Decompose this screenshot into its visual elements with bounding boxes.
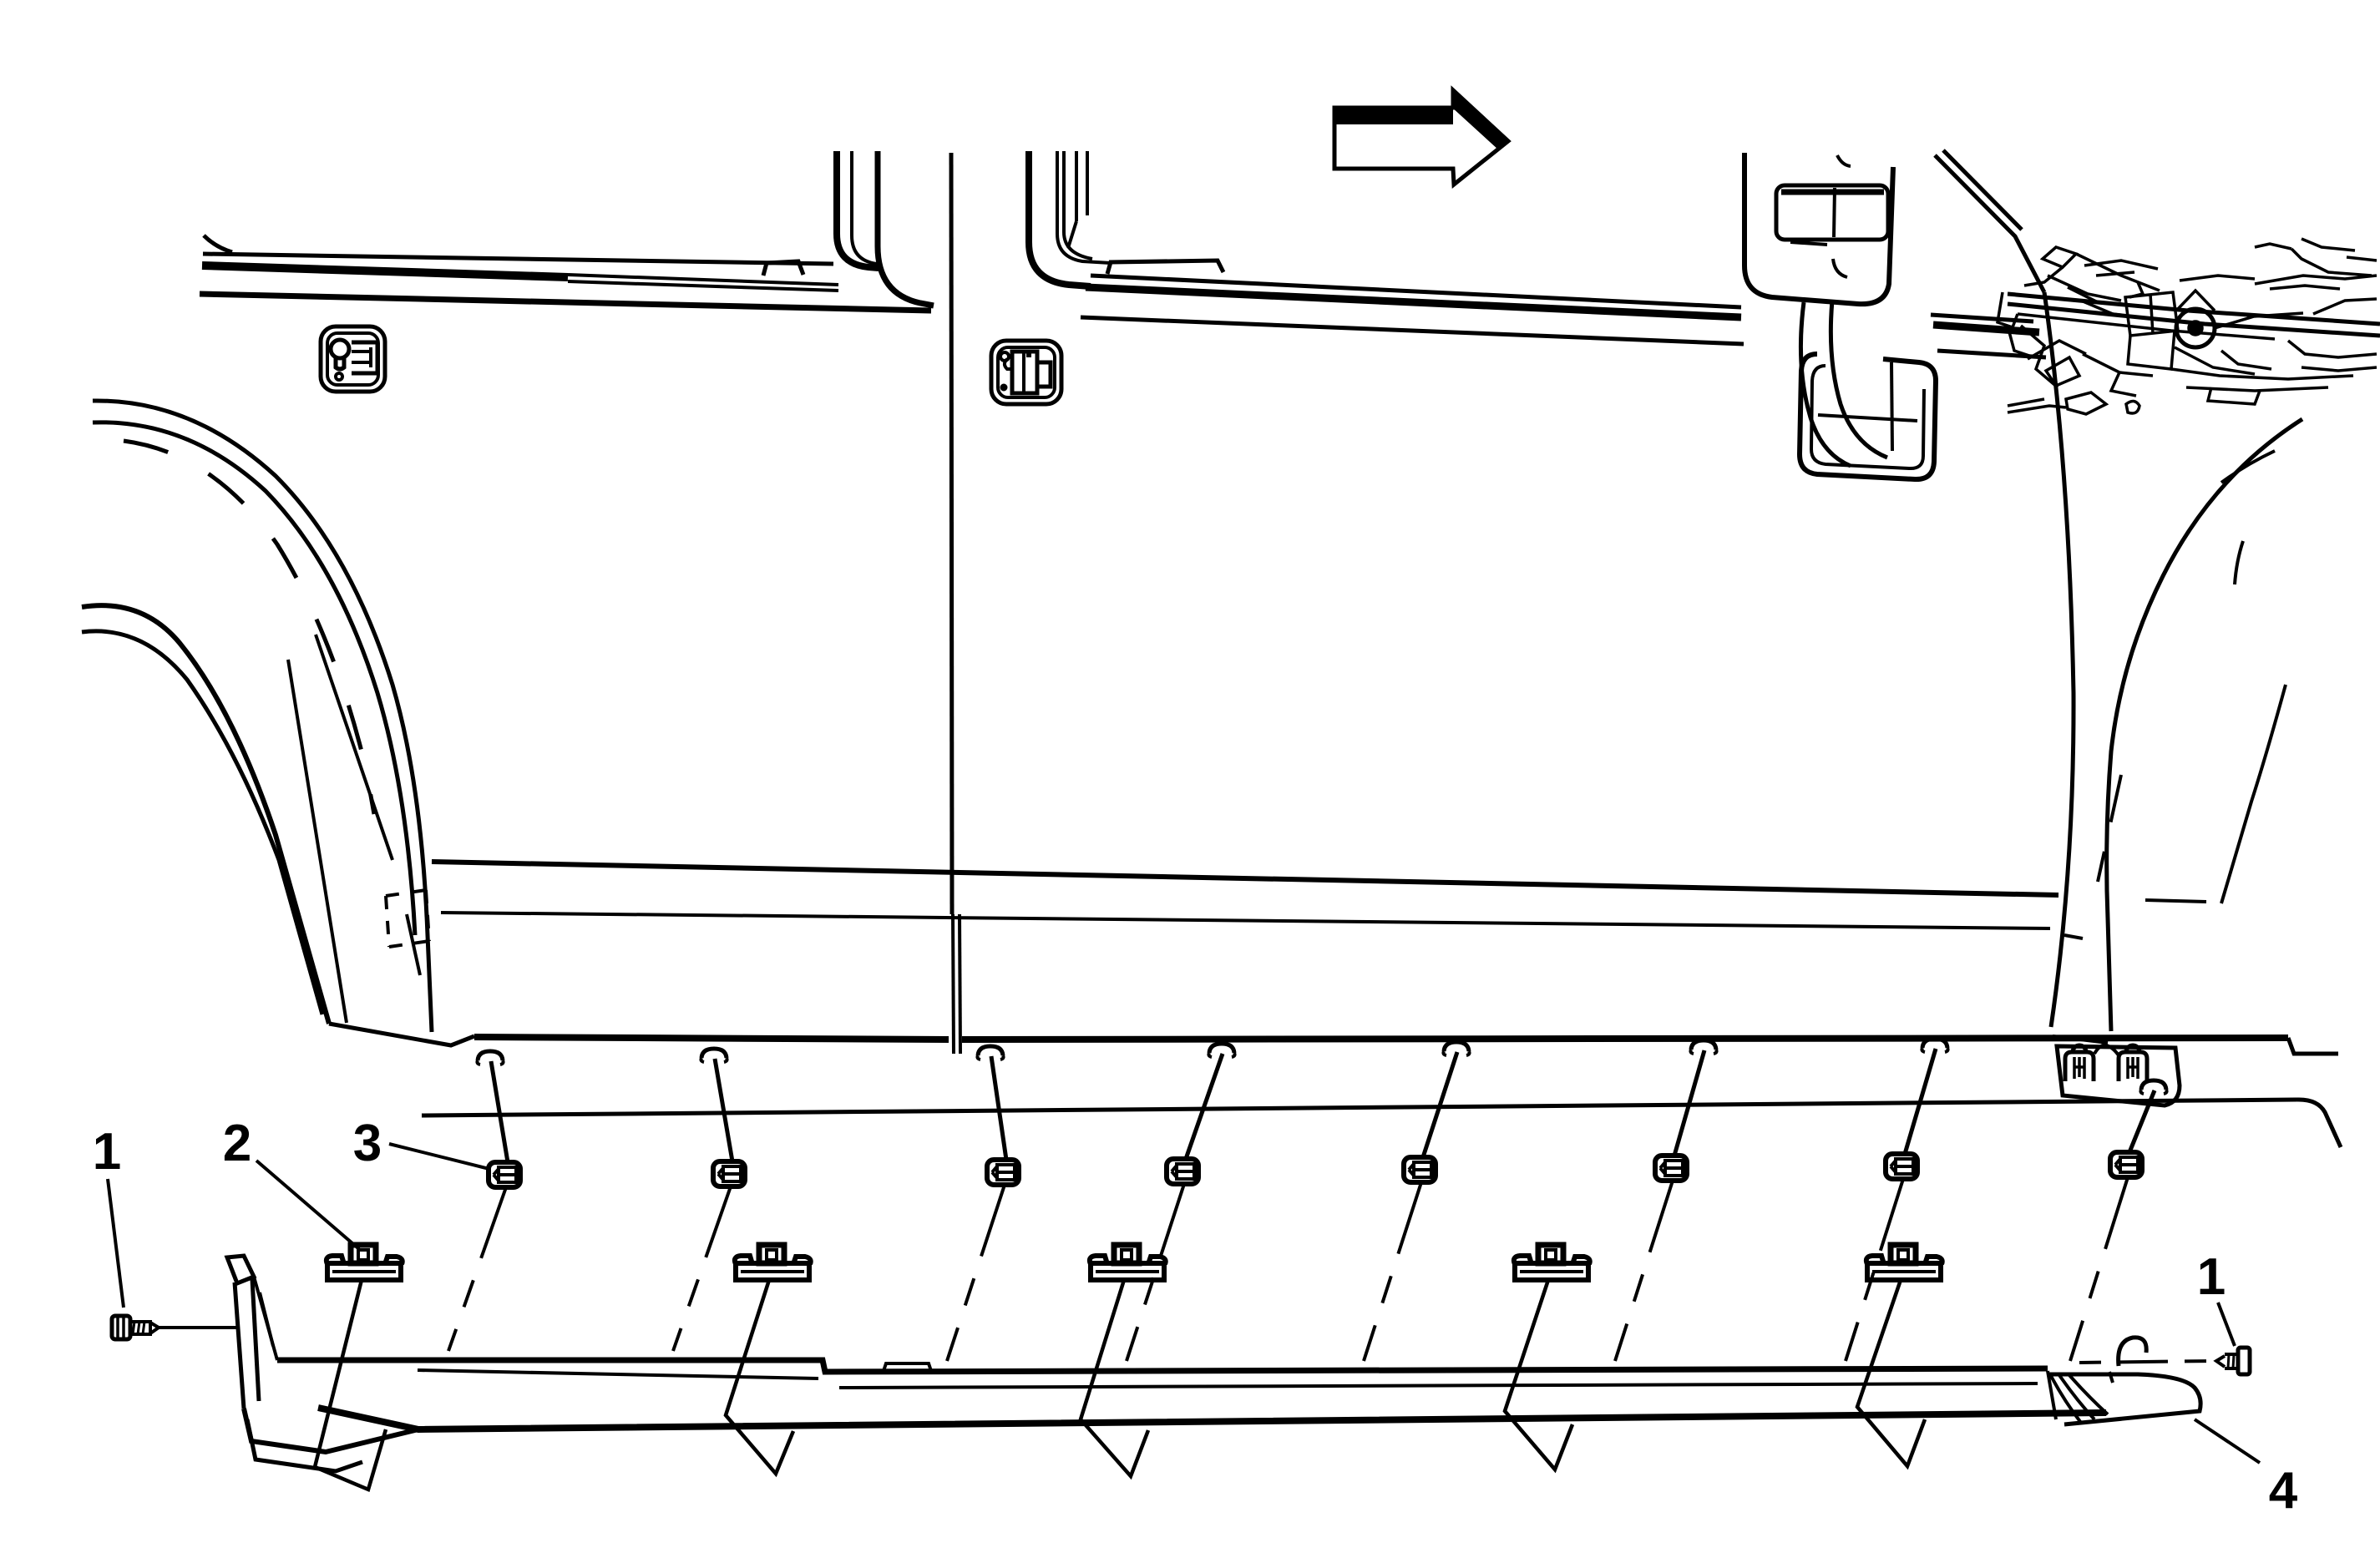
- svg-text:2: 2: [223, 1115, 251, 1172]
- svg-text:1: 1: [2197, 1248, 2226, 1306]
- svg-text:3: 3: [353, 1115, 382, 1172]
- svg-text:1: 1: [93, 1123, 121, 1181]
- svg-text:4: 4: [2269, 1462, 2298, 1520]
